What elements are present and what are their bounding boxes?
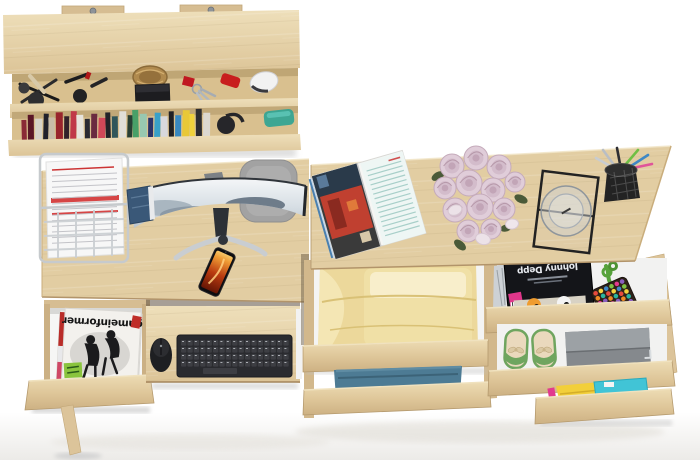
keyboard-key xyxy=(239,340,244,346)
keyboard-key xyxy=(213,354,218,360)
keyboard-key xyxy=(219,340,224,346)
keyboard xyxy=(177,335,292,377)
rose xyxy=(493,198,515,220)
rose-core xyxy=(489,186,496,193)
keyboard-key xyxy=(251,347,256,353)
key-legend xyxy=(284,362,286,363)
keyboard-key xyxy=(283,361,288,367)
key-legend xyxy=(272,362,274,363)
key-legend xyxy=(220,348,222,349)
keyboard-key xyxy=(251,361,256,367)
keyboard-key xyxy=(207,354,212,360)
key-legend xyxy=(265,355,267,356)
key-legend xyxy=(188,341,190,342)
key-legend xyxy=(259,341,261,342)
keyboard-key xyxy=(232,347,237,353)
paper-tray xyxy=(40,154,128,262)
black-box xyxy=(135,83,171,102)
keyboard-key xyxy=(264,347,269,353)
keyboard-key xyxy=(207,347,212,353)
keyboard-tray xyxy=(146,299,302,389)
key-legend xyxy=(240,362,242,363)
rose xyxy=(434,177,456,199)
keyboard-key xyxy=(271,340,276,346)
key-legend xyxy=(278,362,280,363)
keyboard-key xyxy=(187,361,192,367)
rose-core xyxy=(476,203,484,211)
keyboard-key xyxy=(181,354,186,360)
key-legend xyxy=(188,348,190,349)
key-legend xyxy=(252,355,254,356)
key-legend xyxy=(252,362,254,363)
key-legend xyxy=(284,355,286,356)
keyboard-key xyxy=(283,347,288,353)
key-legend xyxy=(208,348,210,349)
key-legend xyxy=(240,355,242,356)
price-sticker xyxy=(64,362,83,378)
teal-case xyxy=(263,108,295,127)
key-legend xyxy=(214,341,216,342)
scene-canvas: gameinformer xyxy=(0,0,700,460)
keyboard-key xyxy=(207,361,212,367)
black-mouse xyxy=(150,338,172,372)
keyboard-key xyxy=(200,340,205,346)
tray-shadow xyxy=(152,383,298,389)
key-legend xyxy=(278,355,280,356)
keyboard-key xyxy=(239,347,244,353)
key-legend xyxy=(284,341,286,342)
rose-core xyxy=(501,206,508,213)
key-legend xyxy=(220,362,222,363)
key-legend xyxy=(259,362,261,363)
keyboard-key xyxy=(251,340,256,346)
key-legend xyxy=(182,348,184,349)
key-legend xyxy=(246,362,248,363)
leg-shadow xyxy=(54,453,102,460)
floor-shadow-left xyxy=(50,434,330,450)
key-legend xyxy=(259,348,261,349)
keyboard-key xyxy=(200,354,205,360)
key-legend xyxy=(182,341,184,342)
ballet-flat-left xyxy=(504,329,528,368)
keyboard-key xyxy=(207,340,212,346)
monitor-hub xyxy=(218,235,228,245)
keyboard-key xyxy=(271,361,276,367)
book-spine xyxy=(196,109,202,141)
keyboard-key xyxy=(264,340,269,346)
keyboard-key xyxy=(277,354,282,360)
keyboard-key xyxy=(226,347,231,353)
keyboard-key xyxy=(258,340,263,346)
keyboard-key xyxy=(213,347,218,353)
key-legend xyxy=(265,341,267,342)
keyboard-key xyxy=(213,340,218,346)
keyboard-key xyxy=(277,361,282,367)
keyboard-key xyxy=(226,354,231,360)
key-legend xyxy=(265,348,267,349)
rose-core xyxy=(448,162,455,169)
keyboard-key xyxy=(181,347,186,353)
yellow-clothes-drawer xyxy=(314,262,484,352)
keyboard-key xyxy=(271,347,276,353)
key-legend xyxy=(220,355,222,356)
keyboard-key xyxy=(194,361,199,367)
key-legend xyxy=(246,341,248,342)
key-legend xyxy=(201,362,203,363)
keyboard-key xyxy=(213,361,218,367)
blue-notebook xyxy=(127,186,155,224)
keyboard-key xyxy=(258,354,263,360)
keyboard-key xyxy=(200,347,205,353)
keyboard-key xyxy=(245,361,250,367)
keyboard-key xyxy=(194,347,199,353)
key-legend xyxy=(278,341,280,342)
keyboard-key xyxy=(200,361,205,367)
book-spine xyxy=(132,110,139,142)
key-legend xyxy=(214,362,216,363)
key-legend xyxy=(182,355,184,356)
rose-core xyxy=(442,185,449,192)
rose xyxy=(456,170,482,196)
key-legend xyxy=(201,348,203,349)
wall-shelf xyxy=(3,5,301,156)
key-legend xyxy=(284,348,286,349)
key-legend xyxy=(188,362,190,363)
keyboard-key xyxy=(283,340,288,346)
ballet-flat-right xyxy=(532,329,557,368)
key-legend xyxy=(227,348,229,349)
desk-set-photo: gameinformer xyxy=(0,0,700,460)
keyboard-key xyxy=(239,354,244,360)
key-legend xyxy=(252,348,254,349)
rose-core xyxy=(465,179,473,187)
keyboard-key xyxy=(232,354,237,360)
key-legend xyxy=(227,362,229,363)
rose xyxy=(505,172,525,192)
glass-in-stand xyxy=(534,171,599,253)
keyboard-key xyxy=(181,361,186,367)
keyboard-key xyxy=(245,340,250,346)
key-legend xyxy=(227,355,229,356)
keyboard-key xyxy=(271,354,276,360)
rose xyxy=(467,194,493,220)
keyboard-key xyxy=(245,347,250,353)
keyboard-key xyxy=(194,354,199,360)
key-legend xyxy=(233,362,235,363)
book-spine xyxy=(70,111,77,143)
keyboard-key xyxy=(187,354,192,360)
key-legend xyxy=(246,348,248,349)
key-legend xyxy=(233,348,235,349)
keyboard-key xyxy=(232,340,237,346)
keyboard-key xyxy=(181,340,186,346)
keyboard-key xyxy=(277,347,282,353)
rose-core xyxy=(465,228,472,235)
drawer-bar-2 xyxy=(303,382,491,415)
key-legend xyxy=(195,355,197,356)
spacebar-key xyxy=(203,368,237,374)
key-legend xyxy=(246,355,248,356)
keyboard-key xyxy=(219,354,224,360)
key-legend xyxy=(201,341,203,342)
rose xyxy=(464,146,488,170)
key-legend xyxy=(195,362,197,363)
shelf-top-grain xyxy=(3,10,300,74)
key-legend xyxy=(233,355,235,356)
keyboard-key xyxy=(277,340,282,346)
key-legend xyxy=(233,341,235,342)
key-legend xyxy=(227,341,229,342)
keyboard-key xyxy=(245,354,250,360)
key-legend xyxy=(272,348,274,349)
key-legend xyxy=(214,348,216,349)
key-legend xyxy=(195,341,197,342)
keyboard-key xyxy=(264,354,269,360)
keyboard-key xyxy=(251,354,256,360)
key-legend xyxy=(220,341,222,342)
keyboard-key xyxy=(194,340,199,346)
rose-core xyxy=(488,226,494,232)
rose-core xyxy=(472,154,479,161)
keyboard-key xyxy=(226,340,231,346)
keyboard-key xyxy=(187,347,192,353)
keyboard-key xyxy=(264,361,269,367)
powder-compact xyxy=(73,89,87,103)
key-legend xyxy=(182,362,184,363)
mount-pin-icon xyxy=(90,8,96,14)
folded-yellow-clothes xyxy=(318,264,478,350)
rose-core xyxy=(512,179,518,185)
scroll-wheel xyxy=(160,345,162,347)
key-legend xyxy=(278,348,280,349)
key-legend xyxy=(272,341,274,342)
keyboard-key xyxy=(239,361,244,367)
keyboard-key xyxy=(187,340,192,346)
drawer-back-rail xyxy=(44,300,150,308)
keyboard-key xyxy=(283,354,288,360)
key-legend xyxy=(201,355,203,356)
key-legend xyxy=(272,355,274,356)
key-legend xyxy=(195,348,197,349)
key-legend xyxy=(214,355,216,356)
keyboard-key xyxy=(258,347,263,353)
monitor-end-cap xyxy=(304,186,306,216)
keyboard-key xyxy=(258,361,263,367)
key-legend xyxy=(208,341,210,342)
keyboard-key xyxy=(232,361,237,367)
keyboard-key xyxy=(226,361,231,367)
key-legend xyxy=(265,362,267,363)
key-legend xyxy=(208,362,210,363)
keyboard-key xyxy=(219,347,224,353)
keyboard-key xyxy=(219,361,224,367)
key-legend xyxy=(208,355,210,356)
key-legend xyxy=(240,348,242,349)
key-legend xyxy=(252,341,254,342)
key-legend xyxy=(188,355,190,356)
book-spine xyxy=(56,112,63,143)
rose-core xyxy=(495,163,502,170)
key-legend xyxy=(240,341,242,342)
key-legend xyxy=(259,355,261,356)
